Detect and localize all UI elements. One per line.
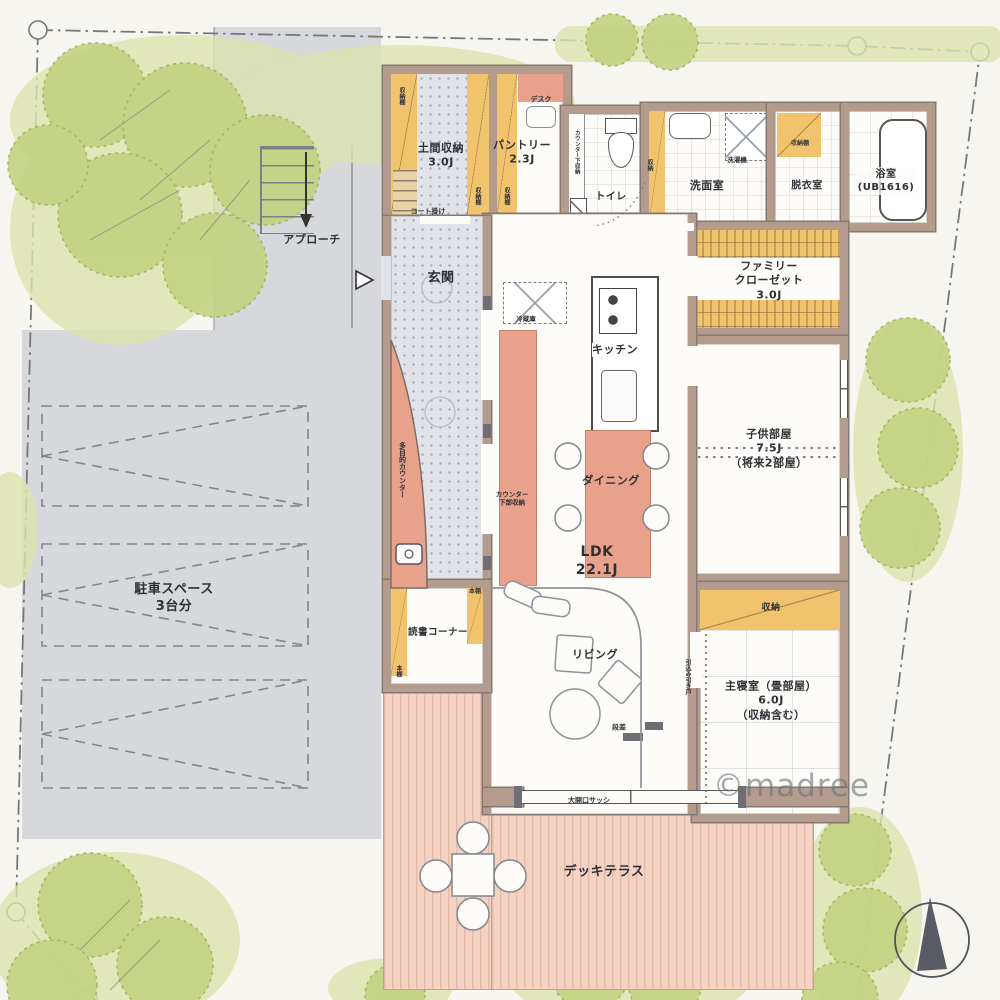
label-multi-counter: 多目的カウンター [399,442,406,498]
closet-hanger-top [696,230,840,258]
deck-terrace-left [383,692,493,990]
room-washroom [641,103,775,231]
floor-plan: 土間収納 3.0J パントリー 2.3J デスク コート掛け トイレ 洗面室 洗… [0,0,1000,1000]
step-mark-2 [623,733,643,741]
label-entrance: 玄関 [427,271,454,288]
label-living: リビング [572,648,618,662]
label-dressing: 脱衣室 [791,180,823,193]
label-fridge: 冷蔵庫 [516,315,536,323]
label-bath: 浴室 (UB1616) [856,167,917,195]
label-storage-washroom: 収納 [646,159,652,171]
label-ldk: LDK 22.1J [576,543,618,579]
label-dining: ダイニング [582,474,640,488]
washing-machine [725,113,767,161]
doma-hall-opening [420,216,470,224]
hall-ldk-slit-2 [481,444,493,534]
big-sash-window [520,790,742,804]
label-master-storage: 収納 [761,603,780,615]
label-kids: 子供部屋 7.5J （将来2部屋） [730,428,807,471]
label-counter-under-kitchen: カウンター 下部収納 [496,491,529,508]
label-sash: 大開口サッシ [568,796,610,805]
label-parking: 駐車スペース 3台分 [134,582,213,616]
label-deck: デッキテラス [564,865,645,882]
label-doma: 土間収納 3.0J [418,142,464,171]
label-bookshelf-left: 本棚 [395,665,401,677]
kids-window-1 [840,360,848,418]
label-shelf-pantry: 収納棚 [503,187,509,205]
partition-post-3 [483,556,491,570]
label-family-closet: ファミリー クローゼット 3.0J [735,260,804,303]
watermark: ©madree [713,768,870,804]
label-desk: デスク [531,95,552,104]
label-washer: 洗濯機 [727,156,747,164]
desk-chair [526,106,556,128]
label-shelf-dressing: 収納棚 [791,140,809,148]
toilet-door-opening [597,220,631,228]
partition-post-1 [483,296,491,310]
sash-post-left [514,786,522,808]
kids-door-opening [686,346,698,386]
label-washroom: 洗面室 [690,179,725,193]
label-shelf-doma-left: 収納棚 [398,87,404,105]
label-sliding-door: 引込み引き戸 [684,659,690,695]
dressing-shelf [777,113,821,157]
label-counter-under-toilet: カウンター下収納 [573,130,579,174]
kitchen-sink [601,370,637,422]
closet-door-opening [686,256,698,296]
stove [599,288,637,334]
label-pantry: パントリー 2.3J [493,139,551,168]
room-ldk [483,214,696,814]
pantry-ldk-opening [525,216,561,224]
label-bookshelf-right: 本棚 [469,588,481,596]
washroom-sink [669,113,711,139]
approach-stairs [260,146,314,234]
closet-hanger-bottom [696,300,840,328]
label-step: 段差 [612,723,626,732]
partition-post-2 [483,424,491,438]
kitchen-counter [499,330,537,586]
reading-bookshelf-left [391,588,407,676]
label-approach: アプローチ [283,233,341,247]
label-reading: 読書コーナー [408,627,468,639]
deck-terrace [491,806,814,990]
reading-bookshelf-right [467,588,483,644]
master-sliding-opening [690,632,702,688]
washroom-door-opening [660,223,694,231]
label-kitchen: キッチン [592,343,638,357]
entrance-door-opening [381,256,391,300]
label-coat-hook: コート掛け [411,207,446,216]
hall-ldk-slit-1 [481,310,493,400]
label-shelf-doma-right: 収納棚 [474,187,480,205]
kids-window-2 [840,478,848,536]
step-mark-1 [645,722,663,730]
label-master: 主寝室（畳部屋） 6.0J （収納含む） [725,680,817,723]
room-dressing [767,103,849,231]
label-toilet: トイレ [595,191,627,204]
